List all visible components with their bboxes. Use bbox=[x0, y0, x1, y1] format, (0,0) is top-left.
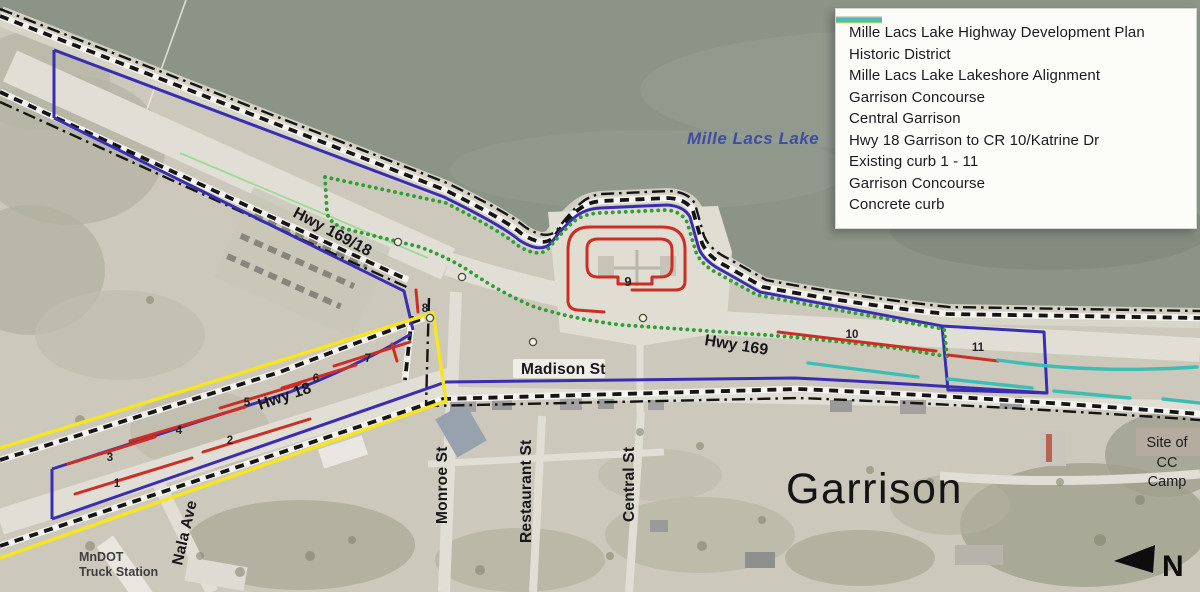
curb-label-4: 4 bbox=[176, 425, 183, 437]
concrete-curb-swatch-icon bbox=[836, 15, 882, 25]
garrison-town-label: Garrison bbox=[786, 465, 963, 513]
concourse-structure bbox=[660, 256, 676, 276]
legend-label: Concrete curb bbox=[849, 194, 1188, 216]
curb-label-6: 6 bbox=[313, 373, 319, 385]
legend-label: Central Garrison bbox=[849, 108, 1188, 130]
legend-label: Existing curb 1 - 11 bbox=[849, 151, 1188, 173]
restaurant-st-label: Restaurant St bbox=[518, 440, 535, 543]
legend-label: Garrison Concourse bbox=[849, 173, 1188, 195]
legend-row-garrison-concourse: Garrison Concourse bbox=[849, 87, 1188, 109]
legend-row-lakeshore-alignment: Mille Lacs Lake Lakeshore Alignment bbox=[849, 65, 1188, 87]
legend-row-garrison-concourse-2: Garrison Concourse bbox=[849, 173, 1188, 195]
curb-label-10: 10 bbox=[846, 329, 859, 341]
monroe-st-label: Monroe St bbox=[434, 446, 451, 524]
cc-camp-label-line1: Site of bbox=[1146, 435, 1188, 451]
curb-label-8: 8 bbox=[422, 303, 429, 315]
legend-row-concrete-curb: Concrete curb bbox=[849, 194, 1188, 216]
legend-row-central-garrison: Central Garrison bbox=[849, 108, 1188, 130]
mndot-label-line1: MnDOT bbox=[79, 550, 124, 564]
curb-label-5: 5 bbox=[244, 397, 251, 409]
madison-st-label: Madison St bbox=[521, 361, 606, 378]
legend-label: Hwy 18 Garrison to CR 10/Katrine Dr bbox=[849, 130, 1188, 152]
map-stage: 1 2 3 4 5 6 7 8 9 10 11 Mille Lacs Lake … bbox=[0, 0, 1200, 592]
legend-row-hwy18: Hwy 18 Garrison to CR 10/Katrine Dr bbox=[849, 130, 1188, 152]
legend-row-existing-curb: Existing curb 1 - 11 bbox=[849, 151, 1188, 173]
central-st-label: Central St bbox=[621, 447, 638, 522]
mndot-label-line2: Truck Station bbox=[79, 565, 158, 579]
curb-label-3: 3 bbox=[107, 452, 113, 464]
cc-camp-label-line3: Camp bbox=[1148, 474, 1187, 490]
curb-label-11: 11 bbox=[972, 342, 985, 354]
legend-row-historic-district: Mille Lacs Lake Highway Development Plan… bbox=[849, 22, 1188, 65]
legend-label: Garrison Concourse bbox=[849, 87, 1188, 109]
curb-label-7: 7 bbox=[365, 353, 371, 365]
legend-label: Mille Lacs Lake Lakeshore Alignment bbox=[849, 65, 1188, 87]
lake-label: Mille Lacs Lake bbox=[687, 129, 819, 148]
legend-panel: Mille Lacs Lake Highway Development Plan… bbox=[835, 8, 1197, 229]
legend-label: Mille Lacs Lake Highway Development Plan… bbox=[849, 22, 1188, 65]
curb-label-9: 9 bbox=[624, 274, 631, 289]
curb-label-1: 1 bbox=[114, 478, 121, 490]
north-arrow-label: N bbox=[1162, 550, 1184, 583]
curb-label-2: 2 bbox=[227, 435, 233, 447]
cc-camp-label-line2: CC bbox=[1157, 455, 1178, 471]
concourse-structure bbox=[598, 256, 614, 276]
